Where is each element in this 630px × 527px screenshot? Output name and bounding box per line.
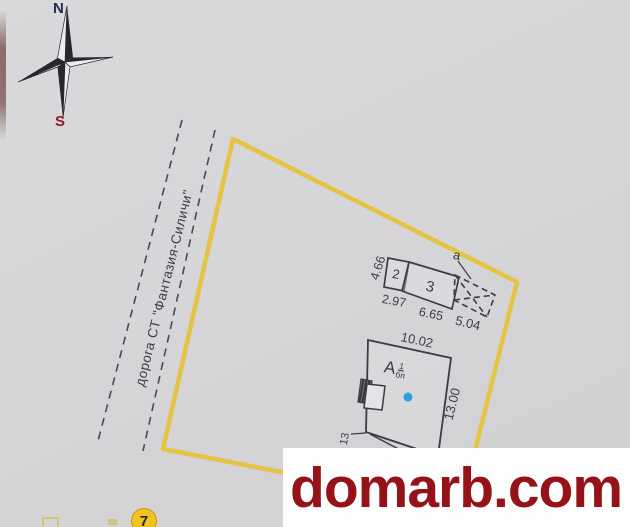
compass-south-label: S: [55, 113, 65, 130]
compass-rose-icon: [18, 6, 113, 118]
dimension-13-partial: 13: [338, 432, 352, 446]
main-building-designation: А 1 бп: [383, 358, 408, 381]
shed-a-leader-line: [458, 261, 471, 279]
survey-point-dot: [404, 393, 413, 402]
photo-count-badge: 7: [131, 508, 157, 527]
badge-number: 7: [140, 513, 148, 527]
watermark-banner: domarb.com: [283, 448, 630, 527]
logo-fragment-tick: [108, 519, 117, 525]
shed-a-outline: [454, 275, 495, 317]
land-plot-plan: N S дорога СТ "Фантазия-Силичи" 4.66 2.9…: [0, 0, 630, 527]
porch-outline: [364, 384, 385, 410]
dimension-tick: [351, 433, 366, 434]
watermark-text: domarb.com: [290, 455, 622, 521]
logo-fragment-square: [42, 517, 59, 527]
road-edge-line-right: [143, 130, 215, 451]
main-building-material: бп: [395, 370, 406, 381]
compass-north-label: N: [53, 0, 64, 17]
